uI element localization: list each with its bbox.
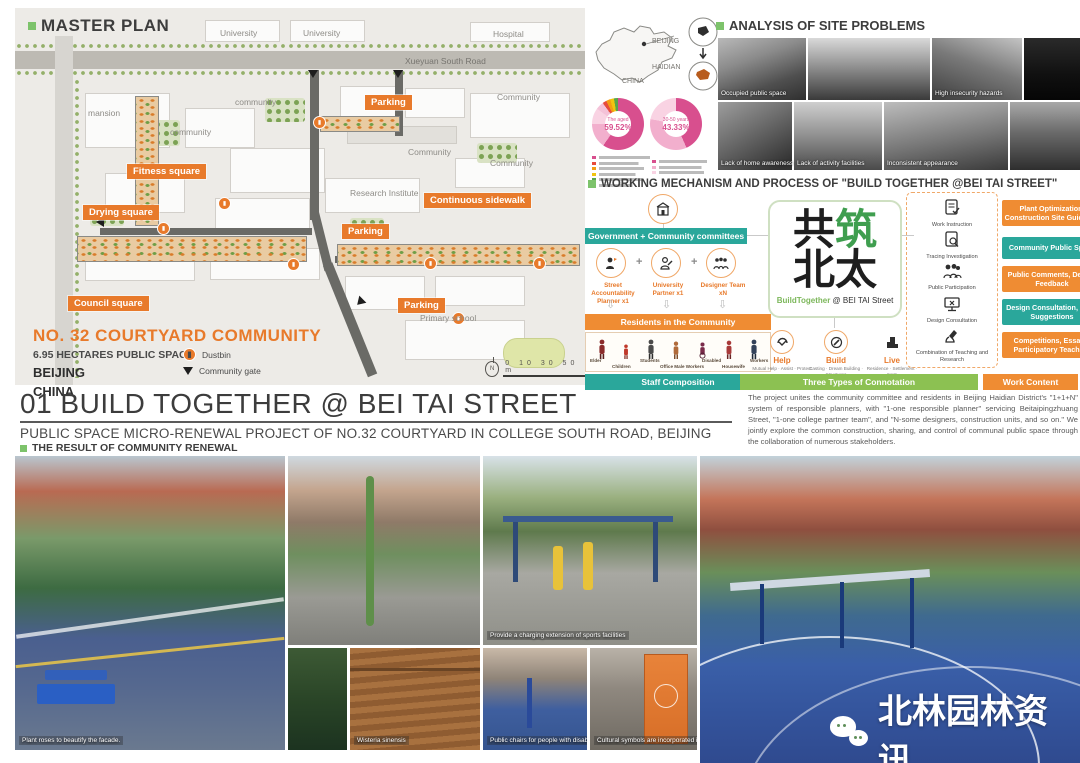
tree-strip (15, 42, 585, 51)
dustbin-marker: ▮ (424, 257, 437, 270)
connector (663, 224, 664, 228)
plan-block (435, 276, 525, 306)
path (310, 70, 319, 220)
logo-char-3: 北 (793, 245, 835, 294)
work-box-4: Design Consultation, Make Suggestions (1002, 299, 1080, 325)
person-figure (622, 344, 630, 359)
government-icon (648, 194, 678, 224)
work-item-participation: Public Participation (909, 263, 995, 292)
blue-bench (37, 684, 115, 704)
design-consultation-icon (943, 296, 961, 312)
connector (834, 318, 835, 328)
problem-photo-1: Occupied public space (718, 38, 806, 100)
live-icon (880, 330, 904, 354)
road-marking (16, 637, 285, 668)
build-label: Build (806, 356, 866, 365)
canopy-post (760, 584, 764, 644)
plan-label-community-1: community (235, 97, 276, 107)
down-arrow: ⇩ (718, 298, 727, 311)
legend-dustbin-label: Dustbin (202, 350, 231, 360)
presentation-board: University University Hospital Xueyuan S… (0, 0, 1080, 763)
fitness-equipment (583, 542, 593, 590)
resident-type: Office Male Workers (660, 364, 704, 369)
watermark-line1: 北林园林资讯 (878, 684, 1080, 763)
green-square-bullet (716, 22, 724, 30)
result-photo-plaza: 北林园林资讯 全球设计奖项研究所 Global Design Awards La… (700, 456, 1080, 763)
build-icon (824, 330, 848, 354)
dustbin-marker: ▮ (287, 258, 300, 271)
dustbin-marker: ▮ (157, 222, 170, 235)
photo-caption: Plant roses to beautify the facade. (19, 736, 123, 745)
path (100, 228, 312, 235)
logo-caption-green: BuildTogether (777, 296, 831, 305)
work-item-teaching: Combination of Teaching and Research (909, 328, 995, 364)
scale-ticks: 0 10 30 50 m (503, 360, 585, 377)
resident-type: Housewife (722, 364, 745, 369)
university-partner-icon (651, 248, 681, 278)
photo-caption: Inconsistent appearance (887, 160, 958, 167)
pole (527, 678, 532, 728)
work-item-tracing: Tracing Investigation (909, 230, 995, 261)
poi-council-square: Council square (68, 296, 149, 311)
poi-fitness-square: Fitness square (127, 164, 206, 179)
photo-caption: High insecurity hazards (935, 90, 1003, 97)
plan-label-research-institute: Research Institute (350, 188, 419, 198)
help-sub: Mutual Help · Assist · Protect (752, 366, 812, 372)
photo-caption: Occupied public space (721, 90, 786, 97)
dustbin-marker: ▮ (218, 197, 231, 210)
photo-caption: Public chairs for people with disabiliti… (487, 736, 587, 745)
xueyuan-south-road (15, 51, 585, 69)
tracing-investigation-icon (944, 230, 960, 248)
poi-parking-3: Parking (398, 298, 445, 313)
mechanism-heading-label: WORKING MECHANISM AND PROCESS OF "BUILD … (601, 178, 1057, 190)
plan-label-university-2: University (303, 28, 340, 38)
map-label-haidian: HAIDIAN (652, 64, 680, 71)
canopy-post (840, 582, 844, 648)
poi-drying-square: Drying square (83, 205, 159, 220)
result-heading: THE RESULT OF COMMUNITY RENEWAL (20, 442, 238, 454)
photo-caption: Cultural symbols are incorporated into t… (594, 736, 697, 745)
master-plan-panel: University University Hospital Xueyuan S… (15, 8, 585, 385)
north-compass-icon: N (485, 361, 499, 377)
down-arrow: ⇩ (662, 298, 671, 311)
partner-label-3: Designer Team xN (699, 282, 747, 298)
road-label: Xueyuan South Road (405, 56, 486, 66)
ramp-rail (350, 668, 480, 671)
public-participation-icon (942, 263, 962, 279)
work-item-label: Combination of Teaching and Research (909, 350, 995, 364)
page-subtitle: PUBLIC SPACE MICRO-RENEWAL PROJECT OF NO… (20, 426, 711, 441)
donut-legend-2 (652, 160, 710, 177)
plan-legend: ▮Dustbin Community gate (183, 348, 261, 381)
title-rule (20, 421, 732, 423)
teaching-research-icon (944, 328, 960, 344)
donut-aged-label: The aged 59.52% (592, 117, 644, 132)
pergola-post (653, 522, 658, 582)
work-box-5: Competitions, Essays, Participatory Teac… (1002, 332, 1080, 358)
result-photo-gate: Cultural symbols are incorporated into t… (590, 648, 697, 750)
designer-team-icon (706, 248, 736, 278)
plan-label-primary-school: Primary school (420, 313, 476, 323)
master-plan-heading: MASTER PLAN (28, 16, 169, 36)
work-item-label: Work Instruction (909, 222, 995, 229)
map-label-beijing: BEIJING (652, 38, 679, 45)
plan-block (405, 88, 465, 118)
residents-bar: Residents in the Community (585, 314, 771, 330)
renewal-strip (320, 116, 400, 132)
result-photo-fitness: Provide a charging extension of sports f… (483, 456, 697, 645)
person-figure (671, 341, 681, 359)
page-title: 01 BUILD TOGETHER @ BEI TAI STREET (20, 388, 577, 420)
person-figure (697, 342, 708, 359)
renewal-strip (77, 236, 307, 262)
analysis-heading-label: ANALYSIS OF SITE PROBLEMS (729, 18, 925, 33)
plan-label-community-4: Community (408, 147, 451, 157)
partner-label-2: University Partner x1 (642, 282, 694, 298)
project-area: 6.95 HECTARES PUBLIC SPACE (33, 349, 321, 361)
logo-caption-rest: @ BEI TAI Street (830, 296, 893, 305)
poi-parking-1: Parking (365, 95, 412, 110)
green-square-bullet (20, 445, 27, 452)
plan-label-community-5: Community (490, 158, 533, 168)
problem-photo-3: High insecurity hazards (932, 38, 1022, 100)
person-figure (646, 339, 656, 359)
work-item-label: Public Participation (909, 285, 995, 292)
connotation-help: Help Mutual Help · Assist · Protect (752, 330, 812, 372)
build-together-logo: 共筑 北太 BuildTogether @ BEI TAI Street (768, 200, 902, 318)
pergola-post (513, 522, 518, 582)
connector (747, 235, 768, 236)
result-photo-vine (288, 648, 347, 750)
donut-age-group-value: 43.33% (650, 123, 702, 132)
dustbin-marker: ▮ (533, 257, 546, 270)
gate-sign-emblem (654, 684, 678, 708)
photo-caption: Provide a charging extension of sports f… (487, 631, 629, 640)
work-box-1: Plant Optimization, Construction Site Gu… (1002, 200, 1080, 226)
tree-strip (15, 69, 585, 78)
down-arrow: ⇩ (606, 298, 615, 311)
result-photo-street (288, 456, 480, 645)
work-content-bar: Work Content (983, 374, 1078, 390)
resident-type: Students (640, 358, 660, 363)
project-city: BEIJING (33, 365, 321, 380)
plan-label-community-3: Community (497, 92, 540, 102)
community-gate-marker (393, 70, 403, 78)
master-plan-heading-label: MASTER PLAN (41, 16, 169, 36)
green-square-bullet (28, 22, 36, 30)
problem-photo-8 (1010, 102, 1080, 170)
result-photo-ramp: Wisteria sinensis (350, 648, 480, 750)
resident-type: Disabled (702, 358, 721, 363)
project-title: NO. 32 COURTYARD COMMUNITY (33, 326, 321, 346)
street-planner-icon (596, 248, 626, 278)
result-heading-label: THE RESULT OF COMMUNITY RENEWAL (32, 442, 238, 454)
gate-legend-icon (183, 367, 193, 375)
mechanism-heading: WORKING MECHANISM AND PROCESS OF "BUILD … (588, 178, 1057, 190)
person-figure (597, 339, 607, 359)
plan-label-mansion: mansion (88, 108, 120, 118)
problem-photo-4 (1024, 38, 1080, 100)
plan-label-hospital: Hospital (493, 29, 524, 39)
government-box: Government + Community committees (585, 228, 747, 244)
problem-photo-5: Lack of home awareness (718, 102, 792, 170)
work-item-label: Tracing Investigation (909, 254, 995, 261)
watermark: 北林园林资讯 全球设计奖项研究所 Global Design Awards La… (830, 684, 1080, 763)
community-gate-marker (308, 70, 318, 78)
problem-photo-6: Lack of activity facilities (794, 102, 882, 170)
result-photo-roses: Plant roses to beautify the facade. (15, 456, 285, 750)
resident-type: Elder (590, 358, 602, 363)
scale-bar: N 0 10 30 50 m (485, 360, 585, 377)
map-label-china: CHINA (622, 78, 644, 85)
connotation-bar: Three Types of Connotation (740, 374, 978, 390)
work-box-2: Community Public Space (1002, 237, 1080, 259)
fitness-equipment (553, 546, 563, 590)
work-instruction-icon (944, 198, 960, 216)
dustbin-legend-icon: ▮ (183, 348, 196, 361)
legend-gate-label: Community gate (199, 366, 261, 376)
green-square-bullet (588, 180, 596, 188)
plan-label-university-1: University (220, 28, 257, 38)
poi-continuous-sidewalk: Continuous sidewalk (424, 193, 531, 208)
plan-label-community-2: community (170, 127, 211, 137)
photo-caption: Wisteria sinensis (354, 736, 409, 745)
work-item-instruction: Work Instruction (909, 198, 995, 229)
road-marking (16, 597, 284, 639)
work-item-consultation: Design Consultation (909, 296, 995, 325)
resident-type: Children (612, 364, 631, 369)
photo-caption: Lack of activity facilities (797, 160, 865, 167)
help-label: Help (752, 356, 812, 365)
green-column (366, 476, 374, 626)
plus-sign: + (691, 256, 697, 268)
photo-caption: Lack of home awareness (721, 160, 793, 167)
work-item-label: Design Consultation (909, 318, 995, 325)
canopy-post (910, 578, 914, 648)
plus-sign: + (636, 256, 642, 268)
work-box-3: Public Comments, Design Feedback (1002, 266, 1080, 292)
project-description: The project unites the community committ… (748, 392, 1078, 447)
connotation-build: Build Casting · Dream Building · Structu… (806, 330, 866, 378)
dustbin-marker: ▮ (313, 116, 326, 129)
pergola-beam (503, 516, 673, 522)
problem-photo-2 (808, 38, 930, 100)
blue-bench-back (45, 670, 107, 680)
result-photo-chairs: Public chairs for people with disabiliti… (483, 648, 587, 750)
donut-age-group-label: 30-50 years 43.33% (650, 117, 702, 132)
donut-aged-value: 59.52% (592, 123, 644, 132)
help-icon (770, 330, 794, 354)
wechat-icon (830, 716, 870, 750)
person-figure (724, 340, 734, 359)
poi-parking-2: Parking (342, 224, 389, 239)
problem-photo-7: Inconsistent appearance (884, 102, 1008, 170)
logo-char-4: 太 (835, 245, 877, 294)
analysis-heading: ANALYSIS OF SITE PROBLEMS (716, 18, 925, 33)
